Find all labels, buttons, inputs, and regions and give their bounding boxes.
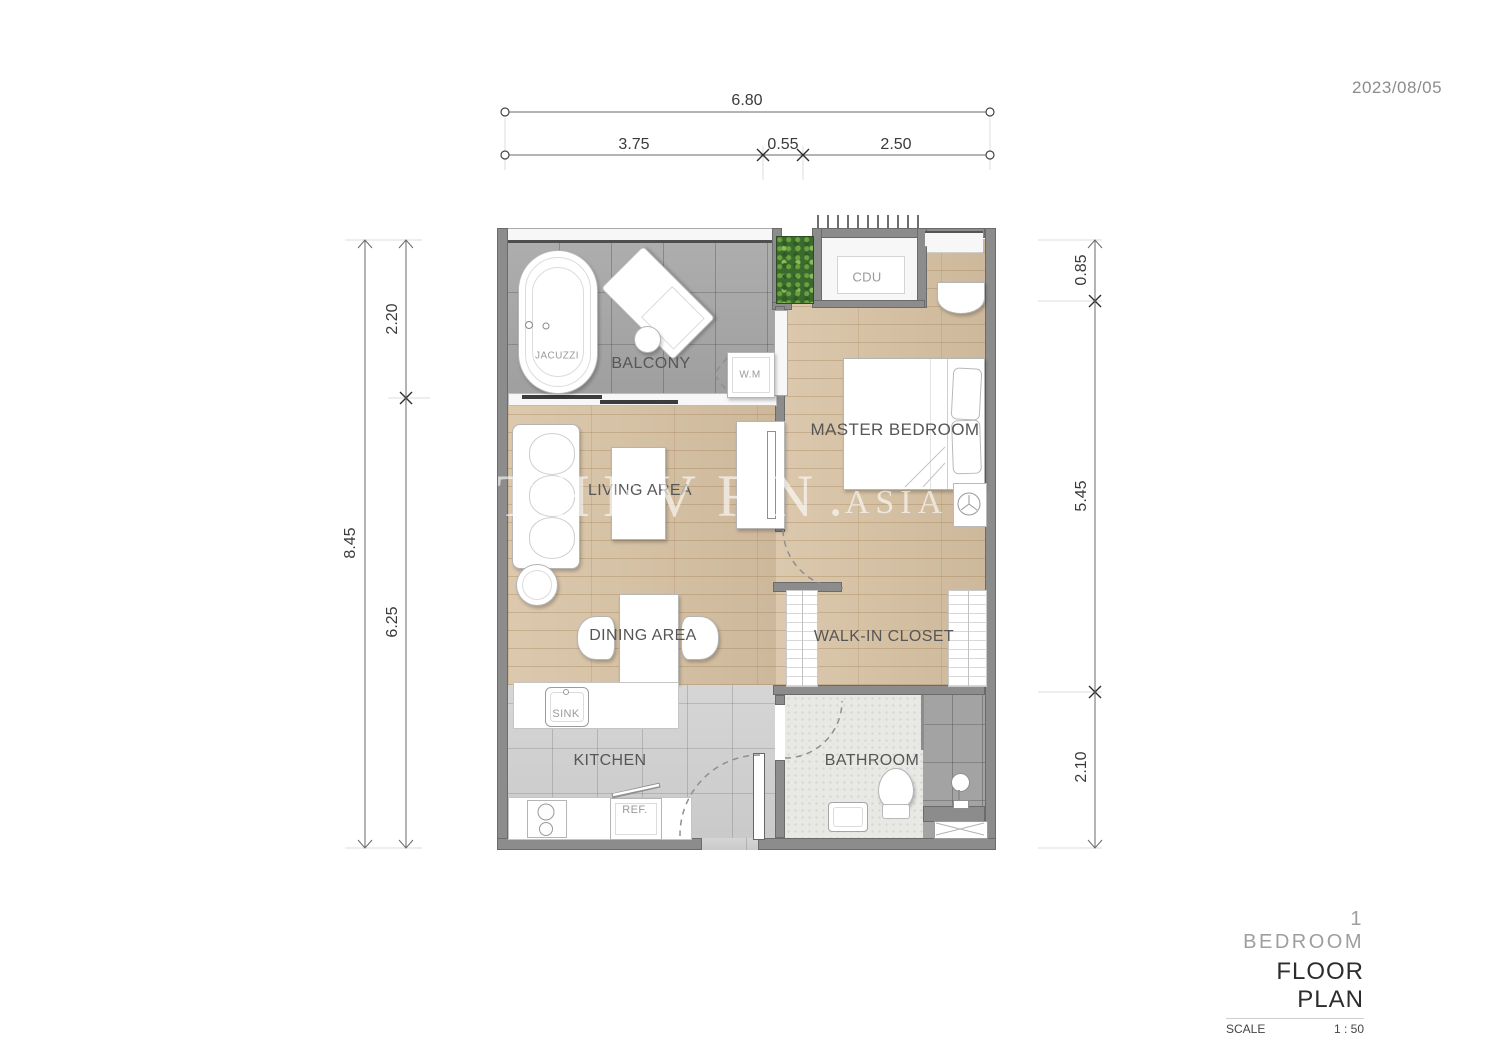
bedside-table	[937, 282, 985, 314]
wall-hall-bath	[775, 760, 785, 838]
basin-inner	[833, 807, 863, 827]
top-dimension-lines	[505, 112, 990, 155]
closet-rail-bar	[968, 591, 969, 686]
jacuzzi-tub	[518, 250, 598, 394]
walk-in-closet-label: WALK-IN CLOSET	[814, 628, 954, 646]
tv-console	[736, 421, 785, 529]
wall-bottom-right	[758, 838, 996, 850]
balcony-railing	[508, 228, 772, 243]
wall-bath-door-stub	[775, 695, 785, 705]
stove	[527, 800, 567, 838]
title-block: 1 BEDROOM FLOOR PLAN SCALE 1 : 50	[1226, 908, 1364, 1036]
master-bedroom-label: MASTER BEDROOM	[810, 420, 979, 440]
scale-value: 1 : 50	[1334, 1022, 1364, 1036]
scale-row: SCALE 1 : 50	[1226, 1018, 1364, 1036]
dim-left-total: 8.45	[342, 527, 360, 558]
dim-right-segment: 0.85	[1073, 254, 1091, 285]
kitchen-counter-top	[513, 682, 679, 729]
sofa	[512, 424, 580, 569]
bathroom-label: BATHROOM	[825, 752, 919, 770]
dim-left-segment: 6.25	[384, 606, 402, 637]
shower-head	[951, 773, 970, 792]
tv-screen	[767, 431, 776, 519]
planter-box	[776, 236, 814, 304]
wall-cdu-bottom	[812, 300, 925, 308]
refrigerator-label: REF.	[622, 804, 647, 816]
pillow	[951, 367, 983, 420]
sink-label: SINK	[552, 708, 579, 720]
unit-type-label: 1 BEDROOM	[1226, 908, 1364, 954]
sliding-door-panel	[600, 400, 678, 404]
sofa-cushion	[529, 517, 575, 559]
kitchen-label: KITCHEN	[573, 752, 646, 770]
dim-top-total: 6.80	[731, 92, 762, 110]
sliding-door-panel	[522, 395, 602, 399]
scale-label: SCALE	[1226, 1022, 1265, 1036]
plan-title: FLOOR PLAN	[1226, 958, 1364, 1014]
plant-pot-ring	[522, 570, 552, 600]
sofa-cushion	[529, 433, 575, 475]
shower-valve	[953, 800, 969, 809]
plan-date: 2023/08/05	[1352, 78, 1442, 98]
ac-unit-box	[953, 483, 987, 527]
entry-door-leaf	[753, 753, 765, 840]
floor-plan-page: 2023/08/05 1 BEDROOM FLOOR PLAN SCALE 1 …	[0, 0, 1500, 1060]
wall-right	[985, 228, 996, 850]
jacuzzi-label: JACUZZI	[535, 351, 579, 362]
dining-area-label: DINING AREA	[589, 627, 697, 645]
balcony-door-frame	[774, 310, 788, 396]
dim-top-segment: 3.75	[618, 136, 649, 154]
wall-left	[497, 228, 508, 850]
dim-top-segment: 2.50	[880, 136, 911, 154]
entry-threshold	[702, 838, 758, 850]
dimension-end-circles	[501, 108, 994, 159]
bathroom-basin	[828, 802, 868, 832]
sofa-cushion	[529, 475, 575, 517]
cdu-label: CDU	[852, 270, 881, 285]
wall-shower-screen	[921, 695, 924, 750]
living-area-label: LIVING AREA	[588, 482, 692, 500]
cdu-louver-vents	[817, 215, 921, 228]
plant-pot	[516, 564, 558, 606]
dim-right-segment: 5.45	[1073, 480, 1091, 511]
dim-right-segment: 2.10	[1073, 751, 1091, 782]
dim-top-segment: 0.55	[767, 136, 798, 154]
shower-drain	[934, 821, 988, 839]
balcony-label: BALCONY	[611, 355, 690, 373]
dim-left-segment: 2.20	[384, 303, 402, 334]
closet-rail-bar	[802, 591, 803, 686]
balcony-side-table	[634, 326, 661, 353]
toilet-tank	[882, 804, 910, 819]
window-sill	[927, 244, 983, 253]
kitchen-sink	[545, 687, 589, 727]
washing-machine-label: W.M	[739, 370, 760, 381]
